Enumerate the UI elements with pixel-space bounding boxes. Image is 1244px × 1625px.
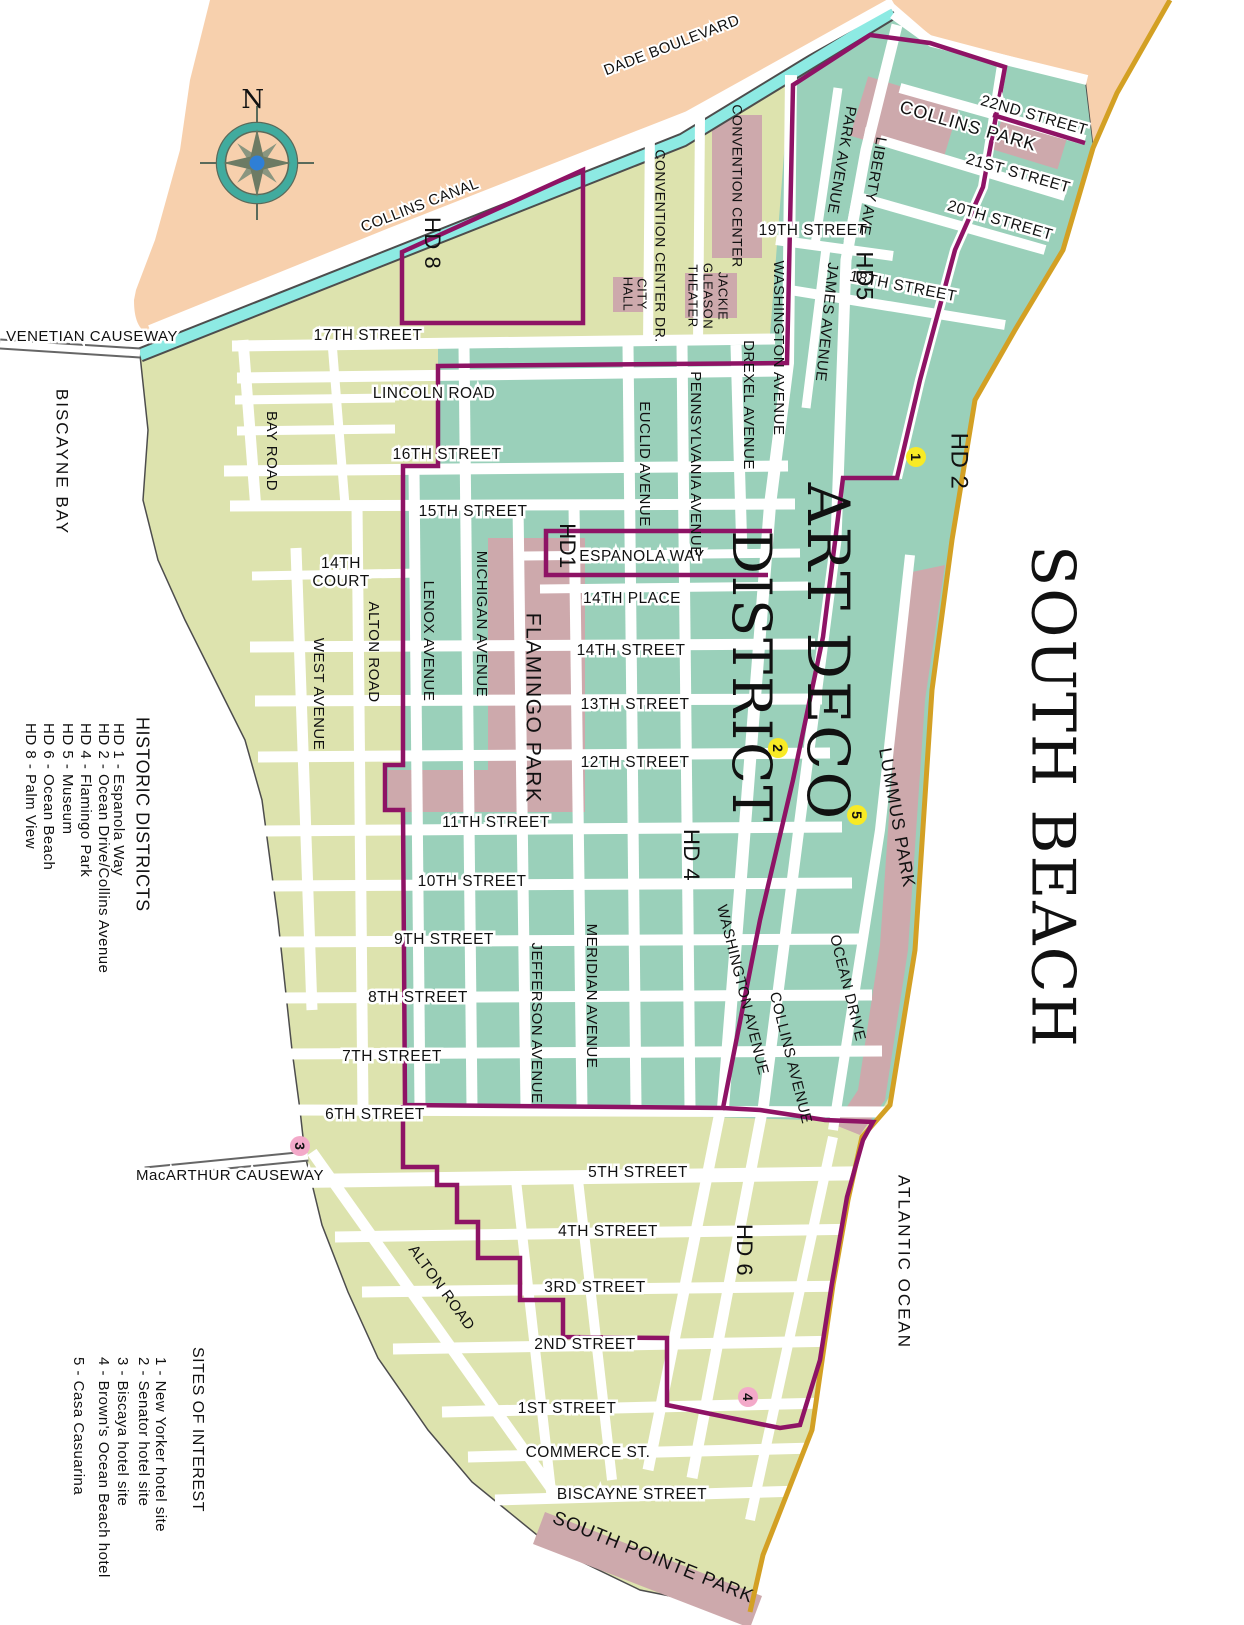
- label-5th-street: 5TH STREET: [588, 1164, 688, 1181]
- label-commerce-st: COMMERCE ST.: [526, 1444, 651, 1461]
- label-city-hall-line2: HALL: [621, 277, 636, 312]
- label-11th-street: 11TH STREET: [442, 814, 550, 831]
- label-hd6: HD 6: [732, 1224, 757, 1276]
- compass-center-dot: [250, 156, 265, 171]
- label-venetian-causeway: VENETIAN CAUSEWAY: [6, 328, 178, 345]
- legend-hd2: HD 2 - Ocean Drive/Collins Avenue: [95, 723, 112, 974]
- label-pennsylvania-avenue: PENNSYLVANIA AVENUE: [687, 371, 704, 556]
- label-washington-avenue-upper: WASHINGTON AVENUE: [770, 261, 787, 436]
- legend-site1: 1 - New Yorker hotel site: [152, 1357, 169, 1532]
- legend-site2: 2 - Senator hotel site: [135, 1357, 152, 1506]
- label-17th-street: 17TH STREET: [314, 327, 423, 344]
- label-hd8: HD 8: [420, 217, 445, 269]
- label-lincoln-road: LINCOLN ROAD: [373, 385, 495, 402]
- site-marker-4[interactable]: 4: [738, 1387, 758, 1407]
- label-7th-street: 7TH STREET: [342, 1048, 442, 1065]
- legend-hd8: HD 8 - Palm View: [22, 723, 39, 849]
- legend-hd6: HD 6 - Ocean Beach: [40, 723, 57, 870]
- compass-n-label: N: [241, 85, 264, 115]
- label-hd2: HD 2: [946, 433, 973, 490]
- title-south-beach: SOUTH BEACH: [1017, 545, 1087, 1049]
- label-convention-center: CONVENTION CENTER: [729, 104, 745, 267]
- label-atlantic-ocean: ATLANTIC OCEAN: [895, 1175, 914, 1349]
- legend-hd4: HD 4 - Flamingo Park: [77, 723, 94, 877]
- label-biscayne-street: BISCAYNE STREET: [557, 1486, 707, 1503]
- label-12th-street: 12TH STREET: [581, 754, 690, 771]
- legend-sites-title: SITES OF INTEREST: [189, 1347, 206, 1512]
- road-11th-street: [263, 827, 842, 831]
- south-beach-map: SOUTH BEACH: [0, 0, 1244, 1625]
- label-meridian-avenue: MERIDIAN AVENUE: [583, 924, 600, 1069]
- legend-site5: 5 - Casa Casuarina: [70, 1357, 87, 1495]
- label-bay-road: BAY ROAD: [263, 411, 280, 491]
- label-hd4: HD 4: [679, 829, 704, 881]
- label-espanola-way: ESPANOLA WAY: [579, 548, 704, 565]
- label-14th-court-line1: 14TH: [321, 555, 361, 572]
- label-jackie-gleason-line2: GLEASON: [701, 263, 716, 329]
- label-13th-street: 13TH STREET: [581, 696, 690, 713]
- label-jackie-gleason-line1: JACKIE: [716, 272, 731, 321]
- label-city-hall-line1: CITY: [635, 278, 650, 310]
- label-10th-street: 10TH STREET: [418, 873, 527, 890]
- road-alton-road-upper: [357, 505, 363, 1108]
- label-1st-street: 1ST STREET: [518, 1400, 617, 1417]
- title-art-deco-line1: ART DECO: [794, 482, 862, 821]
- legend-site4: 4 - Brown's Ocean Beach hotel: [95, 1357, 112, 1578]
- label-14th-court-line2: COURT: [312, 573, 369, 590]
- road-lenox-avenue: [414, 470, 420, 1108]
- title-art-deco-line2: DISTRICT: [720, 531, 783, 824]
- label-west-avenue: WEST AVENUE: [310, 638, 327, 750]
- label-16th-street: 16TH STREET: [393, 446, 502, 463]
- label-3rd-street: 3RD STREET: [544, 1279, 645, 1296]
- label-15th-street: 15TH STREET: [419, 503, 528, 520]
- road-west-cross-2: [237, 429, 395, 431]
- label-9th-street: 9TH STREET: [394, 931, 494, 948]
- label-hd5: HD5: [851, 251, 878, 301]
- label-hd1: HD1: [555, 523, 580, 569]
- label-drexel-avenue: DREXEL AVENUE: [740, 340, 757, 470]
- road-convention-center-dr: [648, 128, 650, 345]
- label-lenox-avenue: LENOX AVENUE: [420, 581, 437, 702]
- site-marker-1[interactable]: 1: [906, 447, 926, 467]
- map-canvas: SOUTH BEACH: [0, 0, 1244, 1625]
- label-euclid-avenue: EUCLID AVENUE: [636, 401, 653, 526]
- label-jefferson-avenue: JEFFERSON AVENUE: [528, 942, 545, 1103]
- label-jackie-gleason-line3: THEATER: [686, 264, 701, 327]
- label-6th-street: 6TH STREET: [325, 1106, 425, 1123]
- road-west-cross-1: [235, 398, 395, 400]
- label-convention-center-dr: CONVENTION CENTER DR.: [652, 149, 668, 342]
- label-2nd-street: 2ND STREET: [534, 1336, 635, 1353]
- label-14th-street: 14TH STREET: [577, 642, 686, 659]
- label-4th-street: 4TH STREET: [558, 1223, 658, 1240]
- site-marker-1-number: 1: [908, 453, 924, 461]
- label-19th-street: 19TH STREET: [759, 222, 868, 239]
- venetian-causeway-road: [0, 344, 140, 353]
- legend-hd5: HD 5 - Museum: [59, 723, 76, 835]
- site-marker-3-number: 3: [292, 1142, 308, 1150]
- label-14th-place: 14TH PLACE: [583, 590, 681, 607]
- legend-historic-title: HISTORIC DISTRICTS: [132, 717, 152, 912]
- label-alton-road-upper: ALTON ROAD: [365, 601, 382, 702]
- label-michigan-avenue: MICHIGAN AVENUE: [473, 551, 490, 697]
- label-flamingo-park: FLAMINGO PARK: [521, 613, 544, 804]
- site-marker-3[interactable]: 3: [290, 1136, 310, 1156]
- site-marker-4-number: 4: [740, 1393, 756, 1401]
- label-macarthur-causeway: MacARTHUR CAUSEWAY: [136, 1167, 324, 1184]
- legend-site3: 3 - Biscaya hotel site: [114, 1357, 131, 1506]
- label-biscayne-bay: BISCAYNE BAY: [53, 389, 72, 535]
- label-8th-street: 8TH STREET: [368, 989, 468, 1006]
